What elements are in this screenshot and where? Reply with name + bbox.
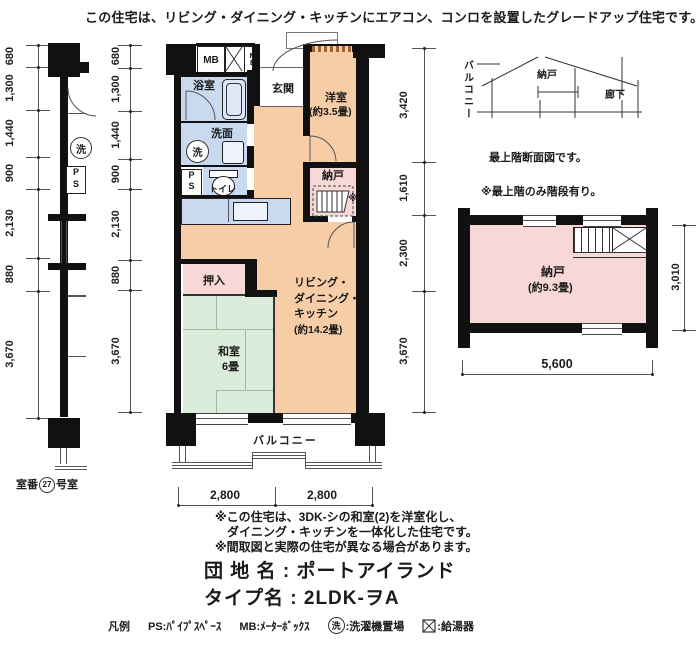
wall bbox=[303, 44, 310, 136]
washer-symbol-text: 洗 bbox=[332, 619, 341, 632]
estate-name-title: 団 地 名 : ポートアイランド bbox=[204, 561, 456, 583]
ps-box: P S bbox=[181, 169, 202, 196]
elev-dim-dot bbox=[37, 109, 40, 112]
ldk-line: キッチン bbox=[294, 308, 360, 321]
balcony-pier bbox=[355, 413, 385, 446]
japanese-room-label: 和室 bbox=[218, 346, 240, 359]
legend-heater-label: :給湯器 bbox=[437, 618, 474, 634]
kitchen-sink bbox=[233, 202, 268, 221]
dim-dot bbox=[129, 110, 132, 113]
dim-dot bbox=[423, 161, 426, 164]
door-gap bbox=[247, 124, 254, 146]
washer-symbol-text: 洗 bbox=[76, 141, 86, 156]
dim-dot bbox=[129, 259, 132, 262]
staircase-steps bbox=[573, 227, 614, 253]
elev-mark bbox=[68, 295, 86, 297]
bath-label: 浴室 bbox=[193, 80, 215, 93]
dim-line bbox=[130, 45, 131, 412]
section-caption: 最上階断面図です。 bbox=[489, 152, 587, 165]
elev-dim-label: 1,300 bbox=[4, 63, 16, 113]
dim-label: 880 bbox=[110, 250, 122, 300]
legend-mb: MB:ﾒｰﾀｰﾎﾞｯｸｽ bbox=[239, 618, 309, 634]
tatami-line bbox=[216, 296, 217, 329]
floor-plan-sheet: この住宅は、リビング・ダイニング・キッチンにエアコン、コンロを設置したグレードア… bbox=[0, 0, 700, 650]
elev-dim-label: 2,130 bbox=[4, 198, 16, 248]
washer-symbol: 洗 bbox=[186, 140, 209, 163]
entrance-label: 玄関 bbox=[272, 83, 294, 96]
dim-dot bbox=[129, 44, 132, 47]
dim-line bbox=[462, 374, 652, 375]
window-line bbox=[283, 418, 351, 419]
wall bbox=[174, 70, 181, 423]
water-heater-icon bbox=[422, 619, 436, 633]
dim-dot bbox=[177, 504, 180, 507]
dim-line bbox=[684, 225, 685, 330]
window-gap bbox=[196, 413, 248, 425]
kitchen-divider bbox=[228, 199, 229, 222]
washer-symbol: 洗 bbox=[70, 137, 92, 159]
western-room-label: 洋室 bbox=[325, 92, 347, 105]
dim-dot bbox=[129, 289, 132, 292]
dim-dot bbox=[129, 158, 132, 161]
western-room-size: (約3.5畳) bbox=[309, 106, 352, 118]
elev-dim-dot bbox=[37, 156, 40, 159]
ldk-line: ダイニング・ bbox=[294, 293, 360, 306]
ldk-size: (約14.2畳) bbox=[294, 324, 360, 336]
mb-text: MB bbox=[203, 55, 219, 66]
note-line: ※間取図と実際の住宅が異なる場合があります。 bbox=[215, 541, 477, 555]
legend-washer-label: :洗濯機置場 bbox=[346, 618, 405, 634]
wall bbox=[181, 165, 247, 167]
wall bbox=[353, 44, 385, 58]
sink bbox=[222, 141, 244, 164]
dim-dot bbox=[371, 504, 374, 507]
staircase-handrail bbox=[573, 252, 647, 258]
window-line bbox=[582, 328, 622, 329]
balcony-rail bbox=[172, 462, 252, 469]
dim-dot bbox=[461, 373, 464, 376]
window-line bbox=[583, 220, 621, 221]
washer-symbol-text: 洗 bbox=[193, 144, 203, 159]
elev-dim-dot bbox=[37, 44, 40, 47]
elev-window bbox=[61, 221, 62, 263]
elev-ps-box: P S bbox=[66, 166, 86, 194]
window-gap bbox=[583, 215, 621, 227]
door-gap bbox=[247, 168, 254, 190]
fusuma-line bbox=[273, 296, 275, 413]
window-gap bbox=[283, 413, 351, 425]
elev-dim-label: 880 bbox=[4, 249, 16, 299]
dim-label: 3,670 bbox=[110, 326, 122, 376]
closet-edge bbox=[183, 294, 245, 296]
note-line: ※この住宅は、3DK-シの和室(2)を洋室化し、 bbox=[215, 511, 461, 525]
legend: 凡例 PS:ﾊﾟｲﾌﾟｽﾍﾟｰｽ MB:ﾒｰﾀｰﾎﾞｯｸｽ 洗 :洗濯機置場 :… bbox=[108, 617, 474, 634]
section-corridor-label: 廊下 bbox=[605, 90, 625, 102]
room-number-circle: 27 bbox=[39, 477, 55, 493]
elev-block-top bbox=[48, 43, 80, 77]
legend-heater: :給湯器 bbox=[422, 618, 474, 634]
ldk-line: リビング・ bbox=[294, 277, 360, 290]
balcony-rail-step bbox=[252, 452, 253, 469]
ps-text: P bbox=[67, 167, 85, 179]
dim-dot bbox=[683, 224, 686, 227]
ldk-label: リビング・ ダイニング・ キッチン (約14.2畳) bbox=[294, 277, 360, 336]
dim-label: 900 bbox=[110, 149, 122, 199]
ps-text: S bbox=[67, 179, 85, 191]
elevation-room-caption: 室番 27 号室 bbox=[16, 477, 78, 493]
window-gap bbox=[582, 323, 622, 335]
elev-dim-label: 900 bbox=[4, 148, 16, 198]
top-room-size: (約9.3畳) bbox=[528, 282, 573, 295]
elev-block-top-tab bbox=[80, 62, 89, 73]
legend-ps: PS:ﾊﾟｲﾌﾟｽﾍﾟｰｽ bbox=[148, 618, 221, 634]
room-number: 27 bbox=[43, 480, 52, 489]
tatami-line bbox=[183, 329, 273, 330]
tatami-line bbox=[245, 329, 246, 390]
dim-dot bbox=[129, 411, 132, 414]
dim-label: 1,610 bbox=[398, 163, 410, 213]
washroom-label: 洗面 bbox=[211, 128, 233, 141]
dim-label: 3,670 bbox=[398, 326, 410, 376]
window-line bbox=[196, 418, 248, 419]
wall bbox=[303, 162, 310, 222]
legend-title: 凡例 bbox=[108, 618, 130, 634]
dim-label: 5,600 bbox=[522, 357, 592, 371]
bathtub bbox=[222, 79, 246, 120]
legend-washer: 洗 :洗濯機置場 bbox=[328, 617, 405, 634]
balcony-pier bbox=[166, 413, 196, 446]
section-balcony-label: バルコニー bbox=[461, 60, 473, 120]
wall bbox=[468, 215, 648, 225]
top-room-label: 納戸 bbox=[541, 266, 565, 280]
staircase-cross-box bbox=[612, 227, 649, 253]
dim-dot bbox=[423, 47, 426, 50]
dim-dot bbox=[129, 188, 132, 191]
wall bbox=[303, 162, 356, 168]
elev-stub bbox=[48, 214, 86, 221]
wall bbox=[181, 72, 254, 77]
wall bbox=[181, 121, 247, 123]
elev-dim-dot bbox=[37, 257, 40, 260]
elev-window bbox=[66, 221, 67, 263]
balcony-rail bbox=[252, 452, 306, 459]
balcony-rail bbox=[306, 462, 382, 469]
mb-box: MB bbox=[197, 46, 225, 74]
window-gap bbox=[523, 215, 556, 227]
window-line bbox=[523, 220, 556, 221]
elev-mark bbox=[68, 356, 86, 357]
wall bbox=[196, 43, 255, 46]
elev-dim-label: 3,670 bbox=[4, 329, 16, 379]
tatami-line bbox=[216, 390, 217, 413]
wall bbox=[356, 44, 369, 424]
dim-label: 2,800 bbox=[287, 489, 357, 503]
elev-block-bottom bbox=[48, 418, 80, 448]
closet-label: 押入 bbox=[203, 275, 225, 288]
dim-dot bbox=[683, 329, 686, 332]
dim-label: 3,420 bbox=[398, 80, 410, 130]
dim-label: 2,130 bbox=[110, 199, 122, 249]
dim-label: 3,010 bbox=[670, 252, 682, 302]
window-hatch bbox=[312, 46, 352, 52]
type-name-title: タイプ名 : 2LDK-ヲA bbox=[204, 588, 400, 610]
elev-dim-dot bbox=[37, 188, 40, 191]
room-caption-suffix: 号室 bbox=[56, 479, 78, 492]
balcony-label: バルコニー bbox=[253, 435, 318, 448]
elev-dim-line bbox=[38, 45, 39, 418]
dim-line bbox=[424, 48, 425, 412]
ps-text: S bbox=[182, 181, 201, 192]
elev-dim-dot bbox=[37, 290, 40, 293]
wall bbox=[181, 195, 247, 198]
dim-label: 2,800 bbox=[190, 489, 260, 503]
dim-dot bbox=[423, 214, 426, 217]
elev-mark bbox=[68, 113, 86, 114]
dim-label: 2,300 bbox=[398, 228, 410, 278]
storage-label: 納戸 bbox=[322, 170, 344, 183]
elev-dim-dot bbox=[37, 66, 40, 69]
dim-dot bbox=[423, 411, 426, 414]
wall bbox=[245, 259, 257, 297]
tatami-line bbox=[216, 390, 273, 391]
balcony-rail-step bbox=[305, 452, 306, 469]
dim-dot bbox=[651, 373, 654, 376]
water-heater-box bbox=[225, 46, 245, 74]
ldk-floor-left bbox=[181, 223, 253, 261]
toilet-label: トイレ bbox=[209, 184, 236, 194]
stair-note-mark: ※ bbox=[348, 193, 358, 205]
ps-text: P bbox=[182, 170, 201, 181]
elev-ground bbox=[55, 464, 87, 470]
note-line: ダイニング・キッチンを一体化した住宅です。 bbox=[215, 526, 478, 540]
elev-dim-dot bbox=[37, 417, 40, 420]
dim-dot bbox=[129, 67, 132, 70]
door-gap bbox=[328, 216, 352, 222]
section-note: ※最上階のみ階段有り。 bbox=[481, 186, 601, 199]
dim-dot bbox=[274, 504, 277, 507]
japanese-room-size: 6畳 bbox=[222, 361, 239, 374]
wall bbox=[166, 44, 196, 75]
dim-label: 1,300 bbox=[110, 64, 122, 114]
room-caption-prefix: 室番 bbox=[16, 479, 38, 492]
bathtub-inner bbox=[226, 83, 242, 116]
washer-symbol: 洗 bbox=[328, 617, 345, 634]
elev-stub bbox=[48, 263, 86, 270]
dim-dot bbox=[423, 290, 426, 293]
sheet-caption: この住宅は、リビング・ダイニング・キッチンにエアコン、コンロを設置したグレードア… bbox=[85, 11, 700, 26]
section-storage-label: 納戸 bbox=[537, 70, 557, 82]
